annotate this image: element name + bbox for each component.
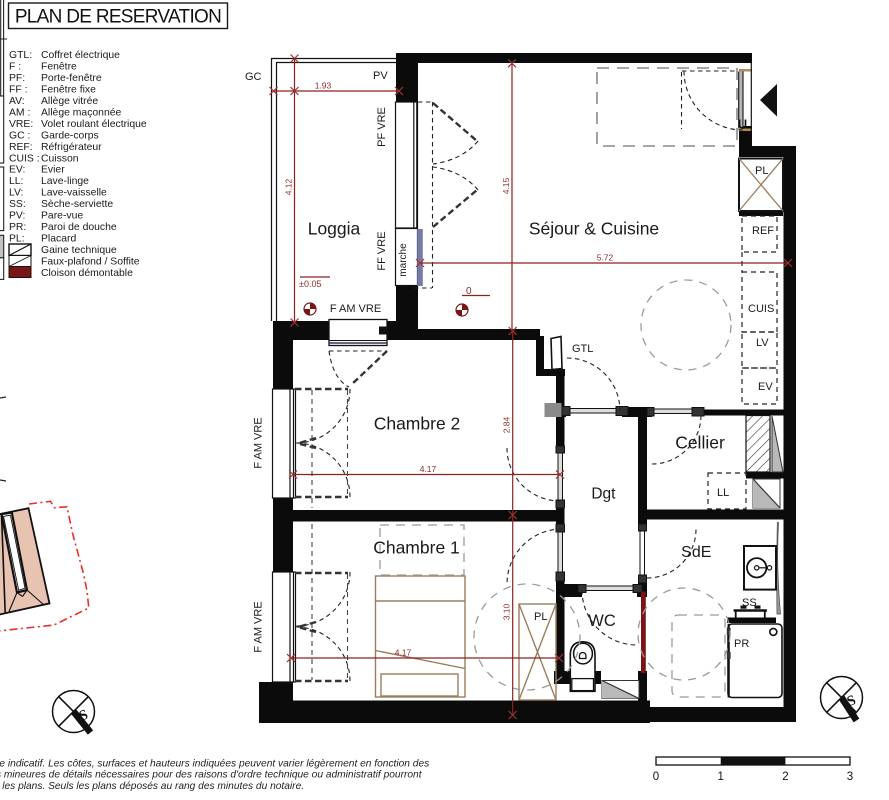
svg-text:Volet roulant électrique: Volet roulant électrique	[41, 119, 147, 130]
svg-text:Allège maçonnée: Allège maçonnée	[41, 107, 122, 118]
svg-text:CUIS: CUIS	[748, 303, 774, 315]
svg-text:EV: EV	[758, 381, 773, 393]
svg-text:Paroi de douche: Paroi de douche	[41, 222, 117, 233]
svg-text:GC :: GC :	[9, 130, 30, 141]
svg-text:Lave-vaisselle: Lave-vaisselle	[41, 188, 107, 199]
svg-text:Cuisson: Cuisson	[41, 153, 79, 164]
svg-text:PV:: PV:	[9, 211, 25, 222]
svg-text:LL:: LL:	[9, 176, 23, 187]
svg-text:F AM VRE: F AM VRE	[253, 601, 265, 652]
svg-text:PL: PL	[755, 165, 768, 177]
svg-text:Pare-vue: Pare-vue	[41, 211, 83, 222]
svg-text:4.15: 4.15	[501, 177, 511, 194]
svg-text:Chambre 1: Chambre 1	[373, 538, 460, 558]
svg-text:LV: LV	[756, 337, 769, 349]
svg-text:CUIS :: CUIS :	[9, 153, 40, 164]
svg-text:Sèche-serviette: Sèche-serviette	[41, 199, 113, 210]
svg-text:WC: WC	[588, 612, 616, 630]
svg-text:Cloison démontable: Cloison démontable	[41, 268, 133, 279]
svg-text:Allège vitrée: Allège vitrée	[41, 96, 98, 107]
svg-text:4.17: 4.17	[395, 648, 412, 658]
svg-text:s mineures de détails nécessai: s mineures de détails nécessaires pour d…	[0, 770, 423, 781]
svg-text:Fenêtre fixe: Fenêtre fixe	[41, 84, 96, 95]
svg-text:VRE:: VRE:	[9, 119, 33, 130]
svg-text:SS:: SS:	[9, 199, 26, 210]
svg-text:Coffret électrique: Coffret électrique	[41, 50, 120, 61]
svg-text:GC: GC	[245, 71, 262, 83]
svg-text:±0.05: ±0.05	[299, 279, 321, 289]
svg-text:2.84: 2.84	[502, 416, 512, 433]
svg-text:Placard: Placard	[41, 234, 76, 245]
svg-text:0: 0	[466, 286, 472, 297]
svg-text:Lave-linge: Lave-linge	[41, 176, 89, 187]
svg-text:F AM VRE: F AM VRE	[253, 417, 265, 468]
svg-text:re indicatif. Les côtes, surfa: re indicatif. Les côtes, surfaces et hau…	[0, 759, 429, 770]
svg-text:F :: F :	[9, 62, 21, 73]
svg-text:Evier: Evier	[41, 165, 65, 176]
svg-text:4.12: 4.12	[284, 178, 294, 195]
svg-text:Dgt: Dgt	[591, 486, 616, 503]
svg-text:LV:: LV:	[9, 188, 23, 199]
svg-text:REF:: REF:	[9, 142, 33, 153]
svg-text:FF :: FF :	[9, 84, 27, 95]
svg-text:Chambre 2: Chambre 2	[374, 414, 461, 434]
svg-text:Loggia: Loggia	[308, 218, 361, 238]
svg-text:1: 1	[717, 771, 723, 783]
svg-text:F AM VRE: F AM VRE	[330, 303, 381, 315]
svg-text:Garde-corps: Garde-corps	[41, 130, 99, 141]
svg-text:PF VRE: PF VRE	[376, 107, 388, 147]
svg-text:5.72: 5.72	[597, 253, 614, 263]
svg-text:1.93: 1.93	[315, 81, 332, 91]
svg-text:marche: marche	[398, 243, 409, 277]
svg-text:AV:: AV:	[9, 96, 25, 107]
svg-text:PF:: PF:	[9, 73, 25, 84]
svg-text:2: 2	[782, 771, 788, 783]
svg-text:PR: PR	[734, 638, 749, 650]
svg-text:Fenêtre: Fenêtre	[41, 62, 77, 73]
svg-text:SS: SS	[742, 597, 757, 609]
svg-text:SdE: SdE	[681, 544, 711, 561]
svg-text:Réfrigérateur: Réfrigérateur	[41, 142, 102, 153]
svg-text:LL: LL	[717, 487, 729, 499]
svg-text:r les plans. Seuls les plans d: r les plans. Seuls les plans déposés au …	[0, 781, 304, 792]
svg-text:PL:: PL:	[9, 234, 25, 245]
svg-text:3.10: 3.10	[502, 603, 512, 620]
svg-text:EV:: EV:	[9, 165, 25, 176]
svg-text:Cellier: Cellier	[675, 433, 725, 453]
svg-text:3: 3	[847, 771, 853, 783]
svg-text:Gaine technique: Gaine technique	[41, 245, 117, 256]
svg-text:GTL: GTL	[572, 343, 593, 355]
svg-text:4.17: 4.17	[420, 464, 437, 474]
svg-text:GTL:: GTL:	[9, 50, 32, 61]
svg-text:Séjour & Cuisine: Séjour & Cuisine	[529, 218, 659, 238]
svg-text:AM :: AM :	[9, 107, 30, 118]
svg-text:Porte-fenêtre: Porte-fenêtre	[41, 73, 102, 84]
svg-text:FF VRE: FF VRE	[376, 231, 388, 270]
svg-text:PV: PV	[373, 70, 388, 82]
svg-text:PL: PL	[534, 611, 547, 623]
svg-text:0: 0	[653, 771, 659, 783]
svg-text:PR:: PR:	[9, 222, 26, 233]
svg-text:PLAN DE RESERVATION: PLAN DE RESERVATION	[15, 7, 221, 28]
svg-text:Faux-plafond / Soffite: Faux-plafond / Soffite	[41, 257, 140, 268]
svg-text:REF: REF	[752, 225, 774, 237]
